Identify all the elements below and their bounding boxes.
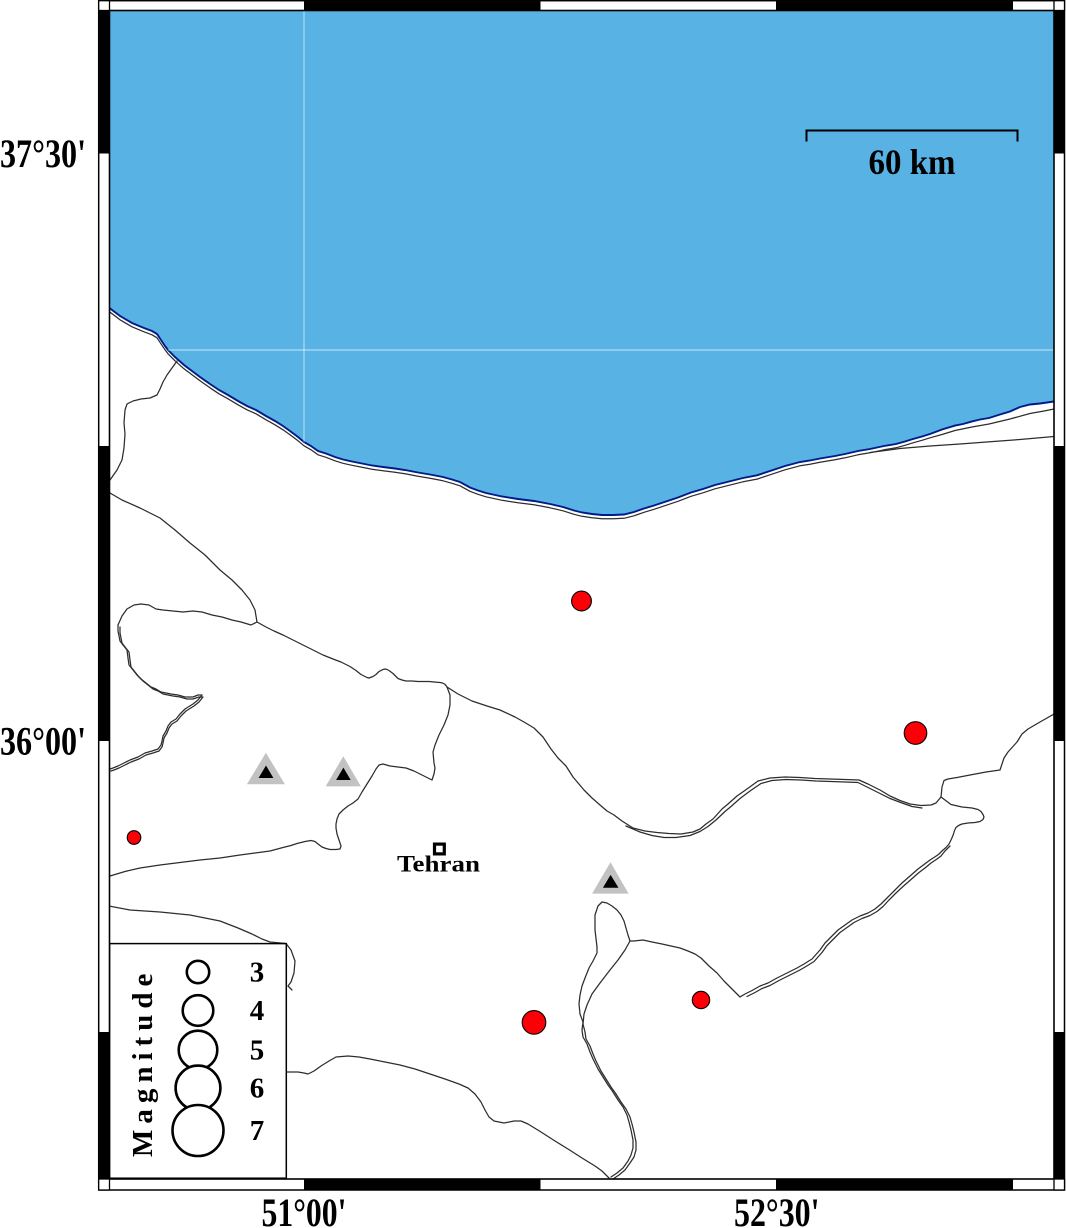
svg-text:Magnitude: Magnitude [127,968,159,1157]
svg-text:51°00': 51°00' [262,1190,347,1228]
svg-text:7: 7 [250,1115,265,1147]
svg-text:52°30': 52°30' [734,1190,820,1228]
svg-text:5: 5 [250,1035,265,1067]
svg-text:60 km: 60 km [869,142,956,182]
svg-text:6: 6 [250,1073,265,1105]
svg-text:4: 4 [250,995,265,1027]
svg-text:37°30': 37°30' [0,131,86,176]
svg-text:Tehran: Tehran [397,852,480,877]
svg-text:3: 3 [250,957,265,989]
svg-text:36°00': 36°00' [0,719,86,764]
